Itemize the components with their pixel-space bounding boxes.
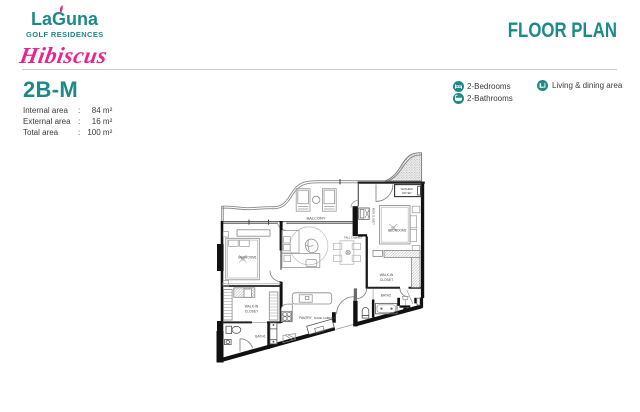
svg-text:IRON CLOSET: IRON CLOSET <box>372 208 375 225</box>
svg-text:BALCONY: BALCONY <box>306 215 325 220</box>
svg-text:TALL CABINET: TALL CABINET <box>344 236 363 240</box>
svg-text:BEDROOM2: BEDROOM2 <box>388 229 406 233</box>
svg-text:BATH1: BATH1 <box>255 334 266 338</box>
svg-text:WASHER/: WASHER/ <box>401 187 414 191</box>
svg-text:WALK-IN: WALK-IN <box>380 273 394 277</box>
svg-text:CLOSET: CLOSET <box>245 310 258 314</box>
svg-text:BEDROOM1: BEDROOM1 <box>238 256 256 260</box>
svg-text:DRYER: DRYER <box>402 191 411 195</box>
svg-text:PANTRY: PANTRY <box>299 316 313 320</box>
svg-text:WALK-IN: WALK-IN <box>245 304 259 308</box>
svg-text:BATH2: BATH2 <box>381 293 392 297</box>
svg-text:CLOSET: CLOSET <box>380 278 393 282</box>
